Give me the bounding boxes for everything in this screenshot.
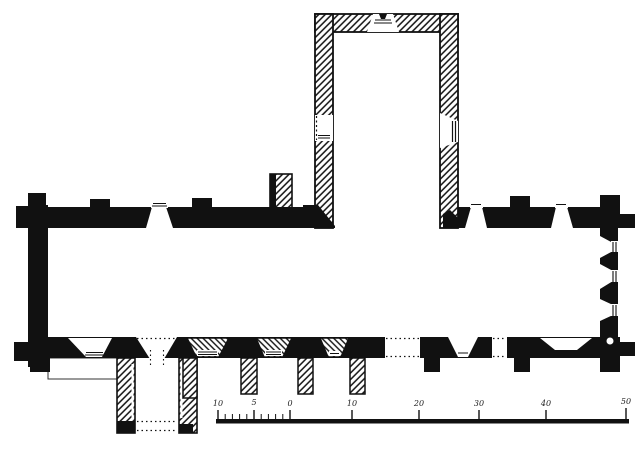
buttress <box>28 193 46 208</box>
buttress <box>510 196 530 207</box>
wall-opening <box>385 337 420 359</box>
scale-tick-label: 50 <box>621 398 631 406</box>
buttress <box>600 358 620 372</box>
scale-tick-label: 0 <box>287 400 292 408</box>
buttress <box>16 206 28 228</box>
scale-tick-label: 5 <box>251 399 256 407</box>
window-splay <box>315 115 333 141</box>
floor-plan-figure: 10 5 0 10 20 30 40 50 <box>0 0 642 454</box>
wall-recess-circle <box>607 338 614 345</box>
buttress <box>618 214 635 228</box>
annexe-outline <box>48 358 118 379</box>
scale-tick-label: 40 <box>541 400 551 408</box>
scale-tick-label: 20 <box>414 400 424 408</box>
floor-plan-drawing <box>0 0 642 454</box>
buttress <box>14 342 28 361</box>
priests-door <box>492 337 507 359</box>
porch-quoin <box>179 424 193 433</box>
buttress <box>90 199 110 208</box>
buttress <box>618 342 635 356</box>
buttress <box>514 358 530 372</box>
scale-tick-label: 10 <box>213 400 223 408</box>
scale-tick-label: 30 <box>474 400 484 408</box>
north-pilaster-buttress <box>270 174 292 210</box>
buttress <box>600 195 620 208</box>
buttress <box>424 358 440 372</box>
scale-tick-label: 10 <box>347 400 357 408</box>
porch-quoin <box>117 421 135 433</box>
buttress <box>192 198 212 208</box>
north-wall-west <box>28 207 318 228</box>
buttress <box>30 358 50 372</box>
